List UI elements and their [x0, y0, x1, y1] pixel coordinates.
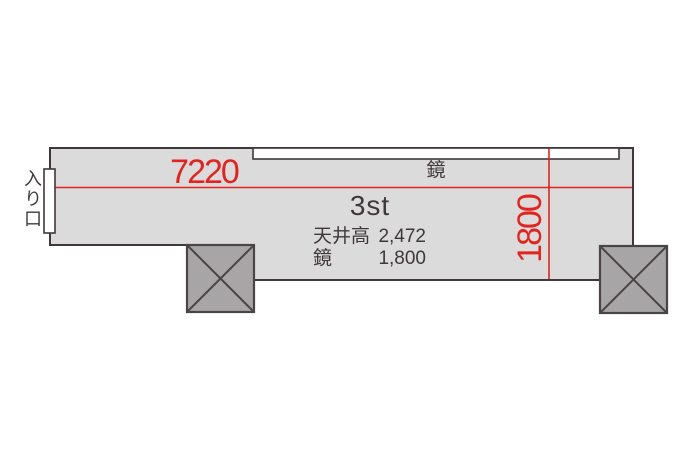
room-specs: 天井高 2,472 鏡 1,800: [313, 226, 426, 270]
pillar-left: [187, 245, 254, 312]
room-width-dimension: 7220: [144, 155, 264, 189]
spec-value: 1,800: [378, 248, 426, 270]
entrance-door: [44, 169, 55, 233]
entrance-label: 入り口: [22, 169, 42, 229]
spec-row-mirror-height: 鏡 1,800: [313, 248, 426, 270]
spec-label: 鏡: [313, 248, 332, 270]
mirror-strip: [253, 148, 619, 159]
mirror-length-dimension: 1800: [513, 169, 549, 289]
spec-label: 天井高: [313, 226, 370, 248]
room-name: 3st: [320, 192, 420, 220]
spec-value: 2,472: [378, 226, 426, 248]
floorplan-canvas: 7220 1800 鏡 入り口 3st 天井高 2,472 鏡 1,800: [0, 0, 700, 465]
spec-row-ceiling-height: 天井高 2,472: [313, 226, 426, 248]
pillar-right: [600, 246, 667, 313]
mirror-label: 鏡: [406, 161, 466, 181]
